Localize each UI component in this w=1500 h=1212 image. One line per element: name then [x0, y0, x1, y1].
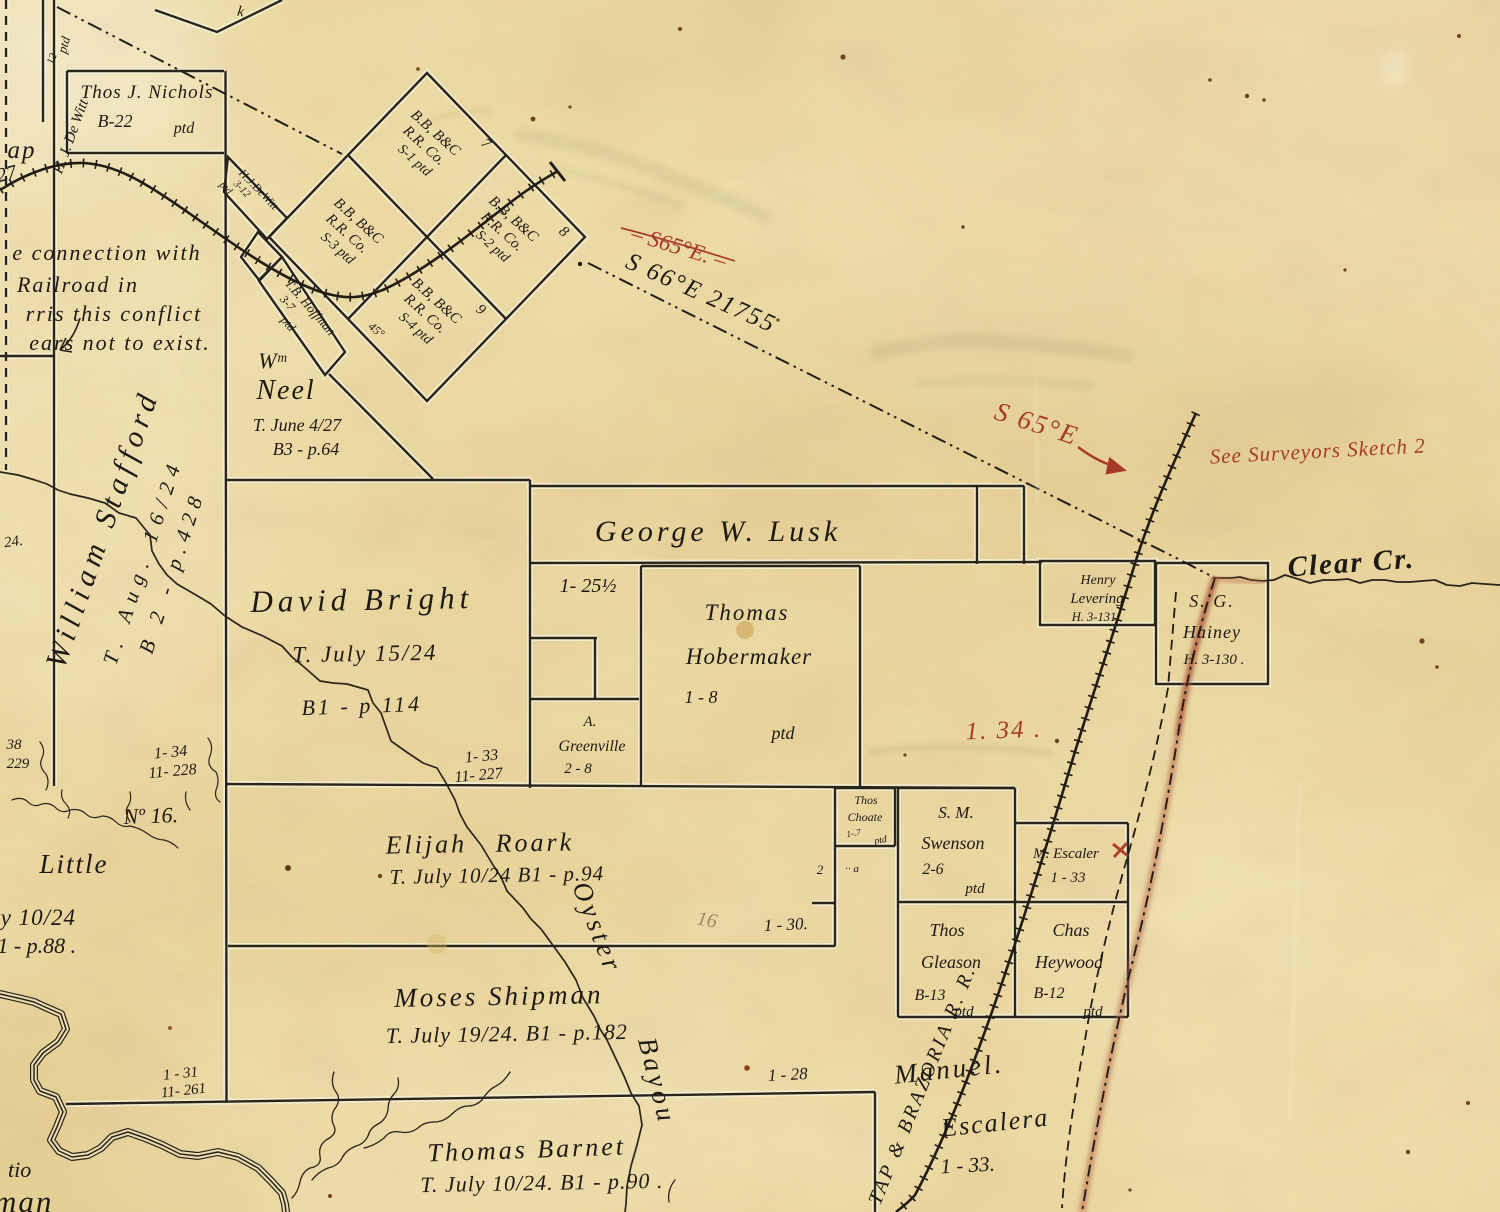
svg-text:Thos J. Nichols: Thos J. Nichols — [81, 82, 214, 103]
svg-text:T. July 19/24. B1 - p.182: T. July 19/24. B1 - p.182 — [386, 1019, 629, 1048]
svg-text:B1 - p 114: B1 - p 114 — [301, 691, 422, 720]
svg-text:ptd: ptd — [964, 881, 985, 897]
svg-text:H. 3-131: H. 3-131 — [1071, 610, 1116, 624]
svg-text:Neel: Neel — [255, 375, 315, 406]
svg-text:Thos: Thos — [929, 920, 964, 940]
svg-text:1- 34: 1- 34 — [153, 743, 188, 763]
svg-text:1 - 8: 1 - 8 — [685, 687, 718, 707]
svg-text:1 - 30.: 1 - 30. — [763, 914, 808, 935]
svg-text:Thos: Thos — [854, 793, 878, 807]
svg-text:S. M.: S. M. — [938, 803, 973, 822]
svg-text:1. 34 .: 1. 34 . — [965, 716, 1042, 746]
svg-text:David Bright: David Bright — [249, 580, 473, 619]
svg-text:1 - 33: 1 - 33 — [1051, 870, 1086, 886]
svg-text:Moses Shipman: Moses Shipman — [393, 979, 604, 1013]
svg-text:B-22: B-22 — [98, 111, 133, 131]
svg-text:Greenville: Greenville — [559, 738, 626, 755]
svg-text:A.: A. — [583, 714, 597, 730]
svg-text:H. 3-130 .: H. 3-130 . — [1183, 652, 1245, 668]
svg-text:ptd: ptd — [173, 120, 195, 137]
svg-text:Henry: Henry — [1080, 573, 1117, 588]
svg-text:2 - 8: 2 - 8 — [564, 761, 592, 777]
svg-text:1 - 33.: 1 - 33. — [940, 1152, 995, 1179]
svg-text:Wᵐ: Wᵐ — [258, 348, 286, 373]
svg-text:S. G.: S. G. — [1189, 591, 1235, 611]
svg-text:T. July 10/24 B1 - p.94: T. July 10/24 B1 - p.94 — [389, 861, 604, 889]
svg-text:tio: tio — [8, 1157, 31, 1182]
svg-text:B1 - p.88 .: B1 - p.88 . — [0, 933, 76, 958]
svg-text:M. Escaler: M. Escaler — [1032, 846, 1099, 862]
svg-text:Hobermaker: Hobermaker — [685, 644, 812, 669]
svg-text:229: 229 — [7, 756, 30, 772]
svg-text:Hainey: Hainey — [1182, 622, 1241, 642]
svg-text:T. July 10/24: T. July 10/24 — [0, 905, 76, 930]
svg-text:B3 - p.64: B3 - p.64 — [273, 439, 340, 459]
svg-text:24.: 24. — [3, 533, 24, 551]
svg-text:B-12: B-12 — [1033, 985, 1064, 1002]
svg-text:T. July 10/24. B1 - p.90 .: T. July 10/24. B1 - p.90 . — [420, 1168, 664, 1197]
svg-text:Choate: Choate — [848, 810, 883, 824]
svg-text:1- 25½: 1- 25½ — [560, 575, 617, 597]
svg-text:ptd: ptd — [769, 723, 795, 743]
svg-text:Swenson: Swenson — [922, 833, 985, 853]
svg-text:Elijah Roark: Elijah Roark — [384, 827, 574, 859]
svg-text:1 - 28: 1 - 28 — [767, 1064, 808, 1085]
svg-text:man: man — [0, 1184, 53, 1212]
svg-text:Heywood: Heywood — [1034, 952, 1104, 972]
svg-text:1- 33: 1- 33 — [464, 747, 499, 767]
svg-text:Railroad in: Railroad in — [16, 272, 139, 297]
svg-text:38: 38 — [6, 737, 23, 753]
svg-text:·· a: ·· a — [845, 863, 859, 875]
svg-text:ap: ap — [8, 137, 37, 164]
svg-text:B-13: B-13 — [914, 987, 945, 1004]
svg-text:George W. Lusk: George W. Lusk — [595, 515, 841, 548]
svg-text:rris this conflict: rris this conflict — [26, 301, 203, 326]
svg-text:T. June 4/27: T. June 4/27 — [253, 415, 342, 435]
svg-text:ears not to exist.: ears not to exist. — [29, 330, 210, 355]
svg-text:T. July 15/24: T. July 15/24 — [292, 640, 437, 668]
svg-text:Nº 16.: Nº 16. — [122, 802, 178, 829]
svg-text:ptd: ptd — [1082, 1004, 1103, 1020]
svg-text:16: 16 — [695, 908, 719, 933]
svg-text:2: 2 — [817, 862, 824, 877]
svg-text:e connection with: e connection with — [12, 240, 201, 265]
svg-text:2-6: 2-6 — [922, 861, 943, 878]
svg-text:Levering: Levering — [1069, 591, 1124, 607]
svg-text:Little: Little — [38, 849, 108, 879]
svg-text:Chas: Chas — [1052, 920, 1089, 940]
